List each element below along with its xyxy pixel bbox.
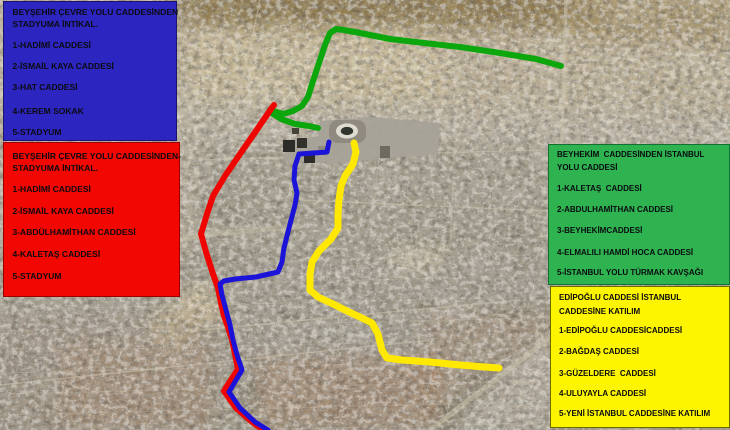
svg-text:LİVİU BOZ: LİVİU BOZ: [285, 264, 409, 282]
